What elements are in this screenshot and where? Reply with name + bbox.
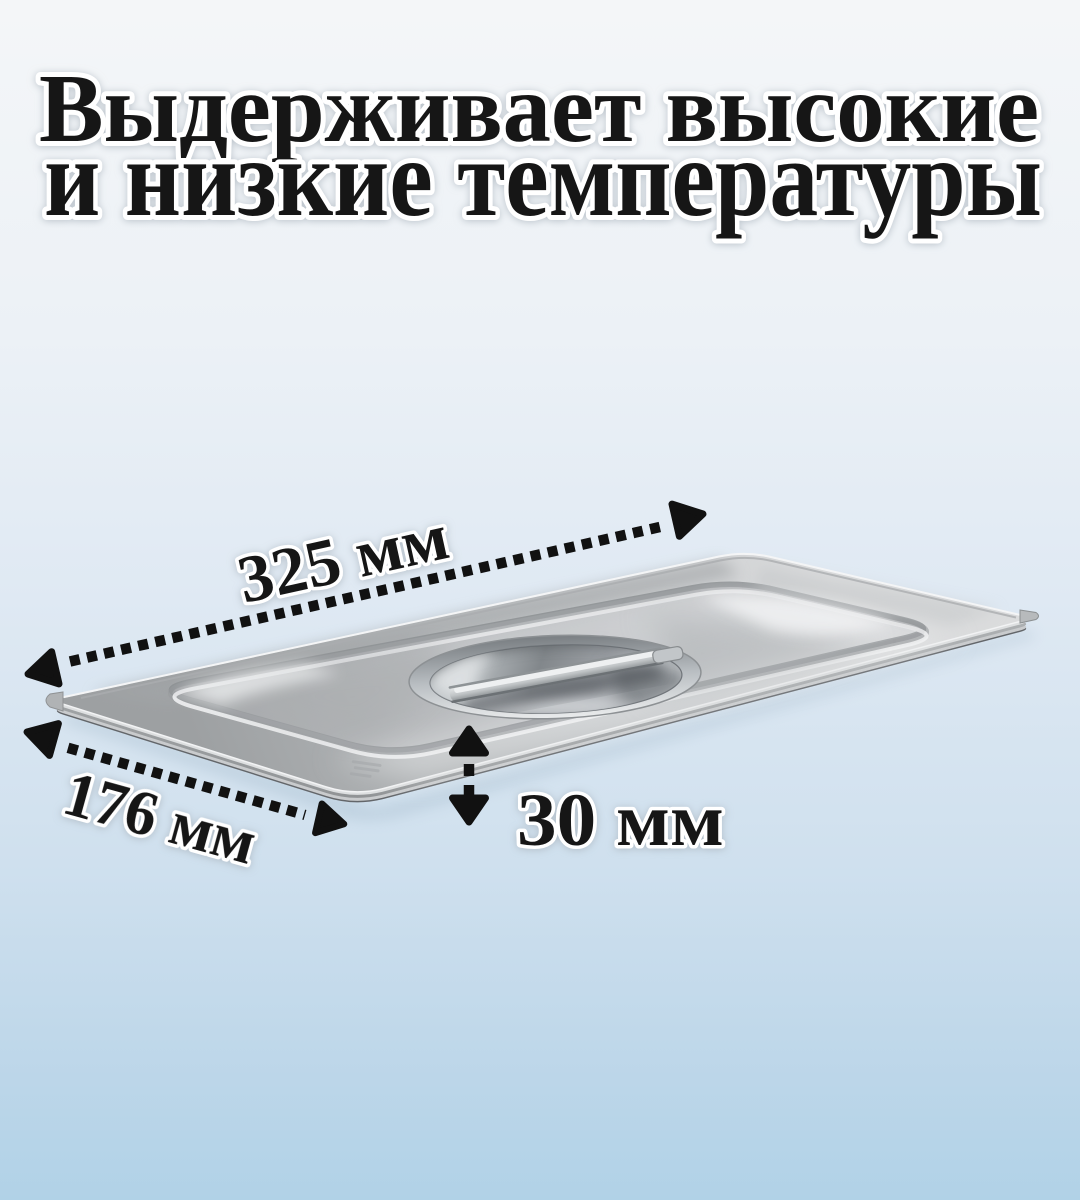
svg-text:и низкие температуры: и низкие температуры bbox=[44, 117, 1042, 239]
svg-text:30 мм: 30 мм bbox=[517, 779, 724, 862]
